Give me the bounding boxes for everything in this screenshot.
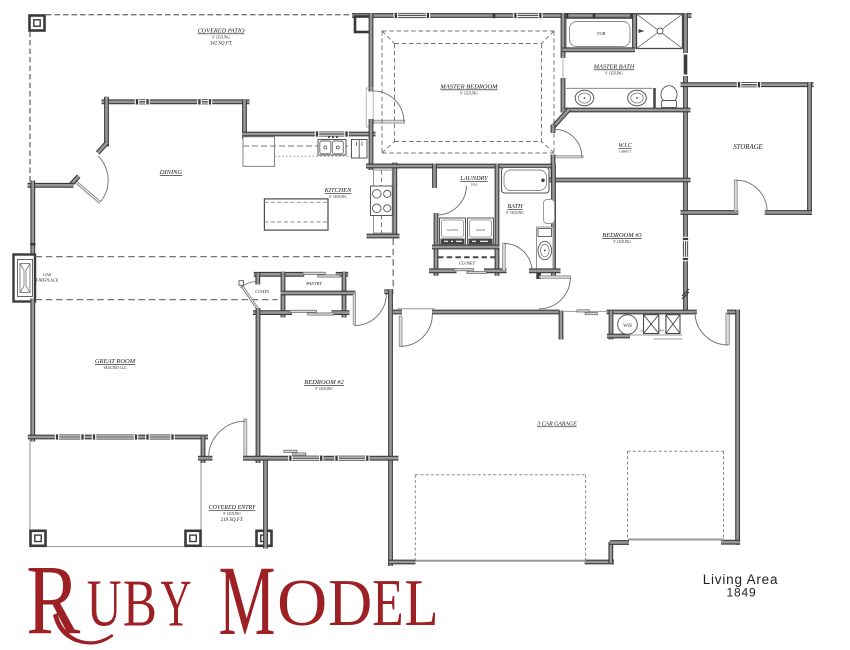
svg-text:CLOSET: CLOSET: [459, 261, 476, 266]
svg-text:COVERED PATIO: COVERED PATIO: [197, 28, 245, 35]
svg-text:WH: WH: [623, 323, 632, 329]
svg-text:COVERED ENTRY: COVERED ENTRY: [209, 505, 256, 511]
svg-text:9' CEILING: 9' CEILING: [223, 512, 241, 516]
svg-text:STORAGE: STORAGE: [733, 144, 763, 151]
svg-text:TILE: TILE: [471, 183, 479, 187]
svg-text:342 SQ.FT.: 342 SQ.FT.: [210, 42, 233, 47]
svg-text:PANTRY: PANTRY: [305, 281, 322, 286]
svg-text:TUB: TUB: [597, 31, 606, 36]
svg-text:BEDROOM #2: BEDROOM #2: [304, 379, 344, 386]
svg-text:W.I.C: W.I.C: [619, 143, 632, 149]
svg-text:R: R: [26, 544, 80, 650]
svg-text:L: L: [405, 566, 439, 640]
svg-text:MASTER BATH: MASTER BATH: [593, 64, 635, 71]
svg-text:CARPET: CARPET: [619, 150, 633, 154]
svg-text:DINING: DINING: [159, 169, 183, 176]
svg-text:9' CEILING: 9' CEILING: [506, 211, 524, 215]
svg-text:M: M: [219, 546, 276, 650]
svg-text:LAUNDRY: LAUNDRY: [459, 175, 488, 182]
svg-text:Y: Y: [161, 567, 192, 641]
svg-text:U: U: [87, 566, 122, 641]
svg-text:9' CEILING: 9' CEILING: [605, 71, 623, 75]
svg-text:DRYER: DRYER: [475, 228, 485, 232]
svg-text:COATS: COATS: [255, 289, 269, 294]
svg-text:KITCHEN: KITCHEN: [324, 187, 352, 194]
svg-text:GAS: GAS: [43, 272, 52, 277]
svg-text:FIREPLACE: FIREPLACE: [35, 278, 59, 283]
svg-text:GREAT ROOM: GREAT ROOM: [95, 358, 136, 365]
svg-text:9' CEILING: 9' CEILING: [315, 387, 333, 391]
svg-text:BATH: BATH: [507, 203, 523, 210]
svg-text:B: B: [123, 566, 157, 640]
svg-text:3 CAR GARAGE: 3 CAR GARAGE: [536, 422, 577, 428]
svg-text:BEDROOM #3: BEDROOM #3: [602, 232, 642, 239]
svg-text:VAULTED CLG: VAULTED CLG: [103, 366, 127, 370]
svg-text:9' CEILING: 9' CEILING: [613, 240, 631, 244]
svg-text:MASTER BEDROOM: MASTER BEDROOM: [439, 84, 498, 91]
svg-text:219 SQ.FT.: 219 SQ.FT.: [221, 518, 244, 523]
svg-text:9' CEILING: 9' CEILING: [460, 91, 478, 95]
svg-text:O: O: [277, 565, 327, 639]
svg-text:E: E: [372, 566, 404, 640]
svg-text:WASHER: WASHER: [447, 228, 459, 232]
svg-text:1849: 1849: [727, 586, 757, 600]
svg-text:9' CEILING: 9' CEILING: [329, 195, 347, 199]
svg-text:D: D: [328, 565, 372, 639]
svg-text:9' CEILING: 9' CEILING: [212, 35, 230, 39]
